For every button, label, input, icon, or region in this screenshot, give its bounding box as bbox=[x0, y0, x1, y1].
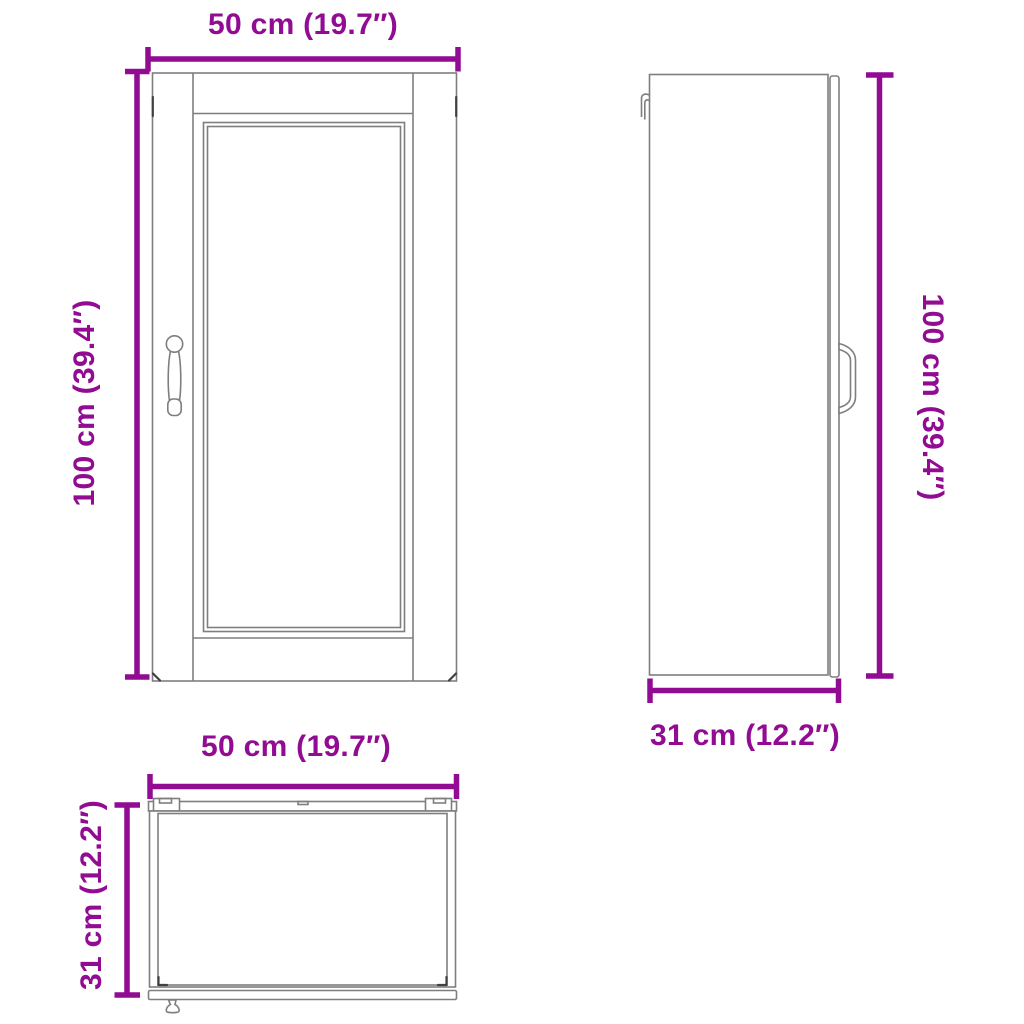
side-depth-dimension-line bbox=[650, 679, 839, 704]
front-view-drawing bbox=[153, 73, 457, 681]
top-depth-dimension-line bbox=[115, 805, 141, 995]
side-door-handle bbox=[839, 344, 856, 414]
product-dimension-diagram: 50 cm (19.7″) 100 cm (39.4″) 100 cm (39.… bbox=[0, 0, 1024, 1024]
front-height-dimension-line bbox=[125, 72, 150, 678]
top-handle-knob bbox=[166, 1000, 179, 1013]
front-height-label: 100 cm (39.4″) bbox=[70, 299, 100, 506]
handle-bottom-knob bbox=[168, 399, 181, 416]
front-cabinet-outline bbox=[153, 73, 457, 681]
cabinet-line-art bbox=[0, 0, 1024, 1024]
top-back-rail bbox=[149, 802, 457, 812]
front-width-label: 50 cm (19.7″) bbox=[208, 10, 398, 40]
side-door-edge bbox=[830, 76, 839, 677]
top-width-label: 50 cm (19.7″) bbox=[201, 732, 391, 762]
front-door-handle bbox=[166, 336, 182, 416]
top-view-drawing bbox=[149, 799, 457, 1013]
side-height-label: 100 cm (39.4″) bbox=[917, 293, 947, 500]
side-depth-label: 31 cm (12.2″) bbox=[650, 721, 840, 751]
top-door-strip bbox=[149, 991, 457, 1000]
side-height-dimension-line bbox=[866, 75, 894, 676]
top-body-outline bbox=[150, 811, 456, 987]
side-view-drawing bbox=[642, 75, 856, 678]
top-left-mount-bracket bbox=[154, 799, 180, 812]
top-depth-label: 31 cm (12.2″) bbox=[77, 800, 107, 990]
handle-stem bbox=[168, 351, 181, 400]
top-width-dimension-line bbox=[150, 774, 457, 799]
front-width-dimension-line bbox=[148, 47, 458, 72]
side-cabinet-body bbox=[650, 75, 829, 676]
top-right-mount-bracket bbox=[426, 799, 452, 812]
handle-top-knob bbox=[166, 336, 182, 352]
